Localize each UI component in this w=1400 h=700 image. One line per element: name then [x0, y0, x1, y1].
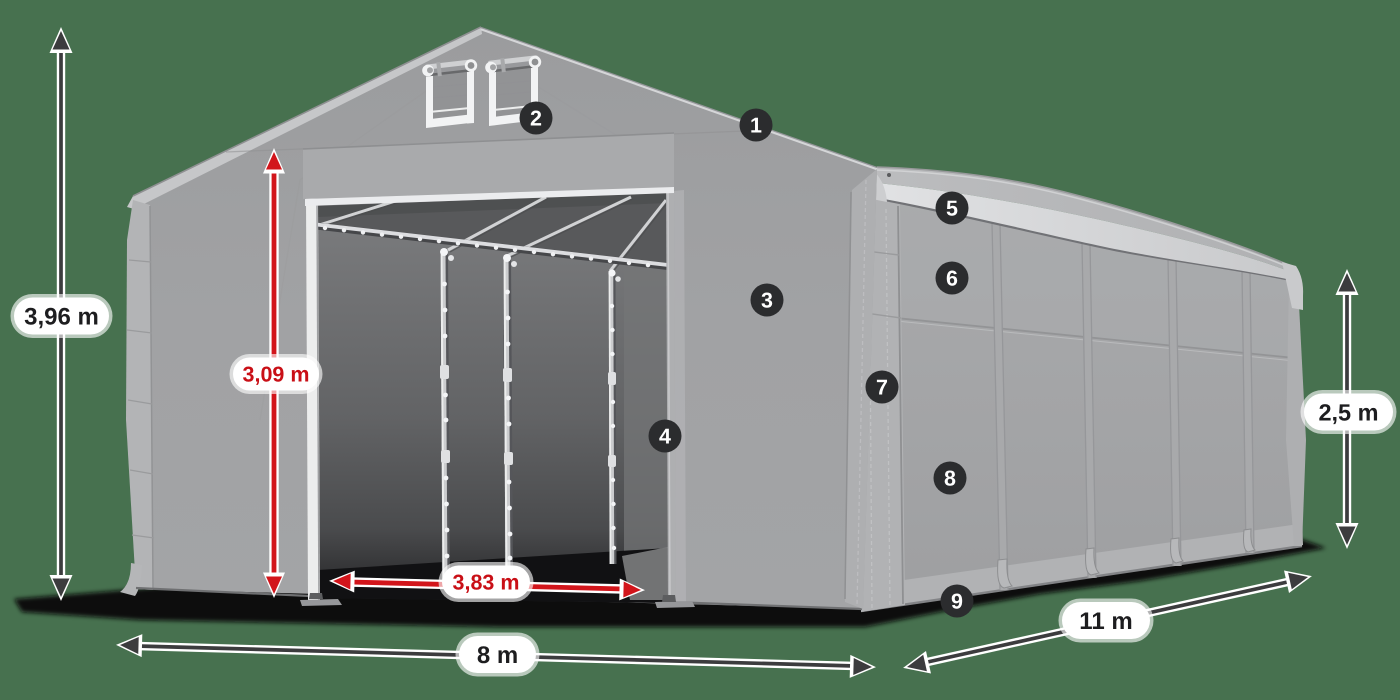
svg-text:7: 7: [876, 376, 888, 400]
svg-text:4: 4: [659, 425, 671, 449]
svg-text:2,5 m: 2,5 m: [1318, 399, 1378, 425]
svg-text:3,96 m: 3,96 m: [24, 304, 99, 331]
svg-text:5: 5: [946, 197, 958, 221]
svg-text:9: 9: [951, 590, 963, 614]
svg-text:3: 3: [761, 289, 773, 313]
svg-text:8 m: 8 m: [477, 642, 518, 669]
svg-text:3,83 m: 3,83 m: [453, 571, 520, 595]
svg-text:11 m: 11 m: [1079, 608, 1132, 635]
svg-text:3,09 m: 3,09 m: [243, 363, 310, 387]
svg-text:2: 2: [530, 107, 542, 131]
svg-text:8: 8: [944, 467, 956, 491]
svg-text:1: 1: [750, 114, 762, 138]
svg-text:6: 6: [946, 267, 958, 291]
